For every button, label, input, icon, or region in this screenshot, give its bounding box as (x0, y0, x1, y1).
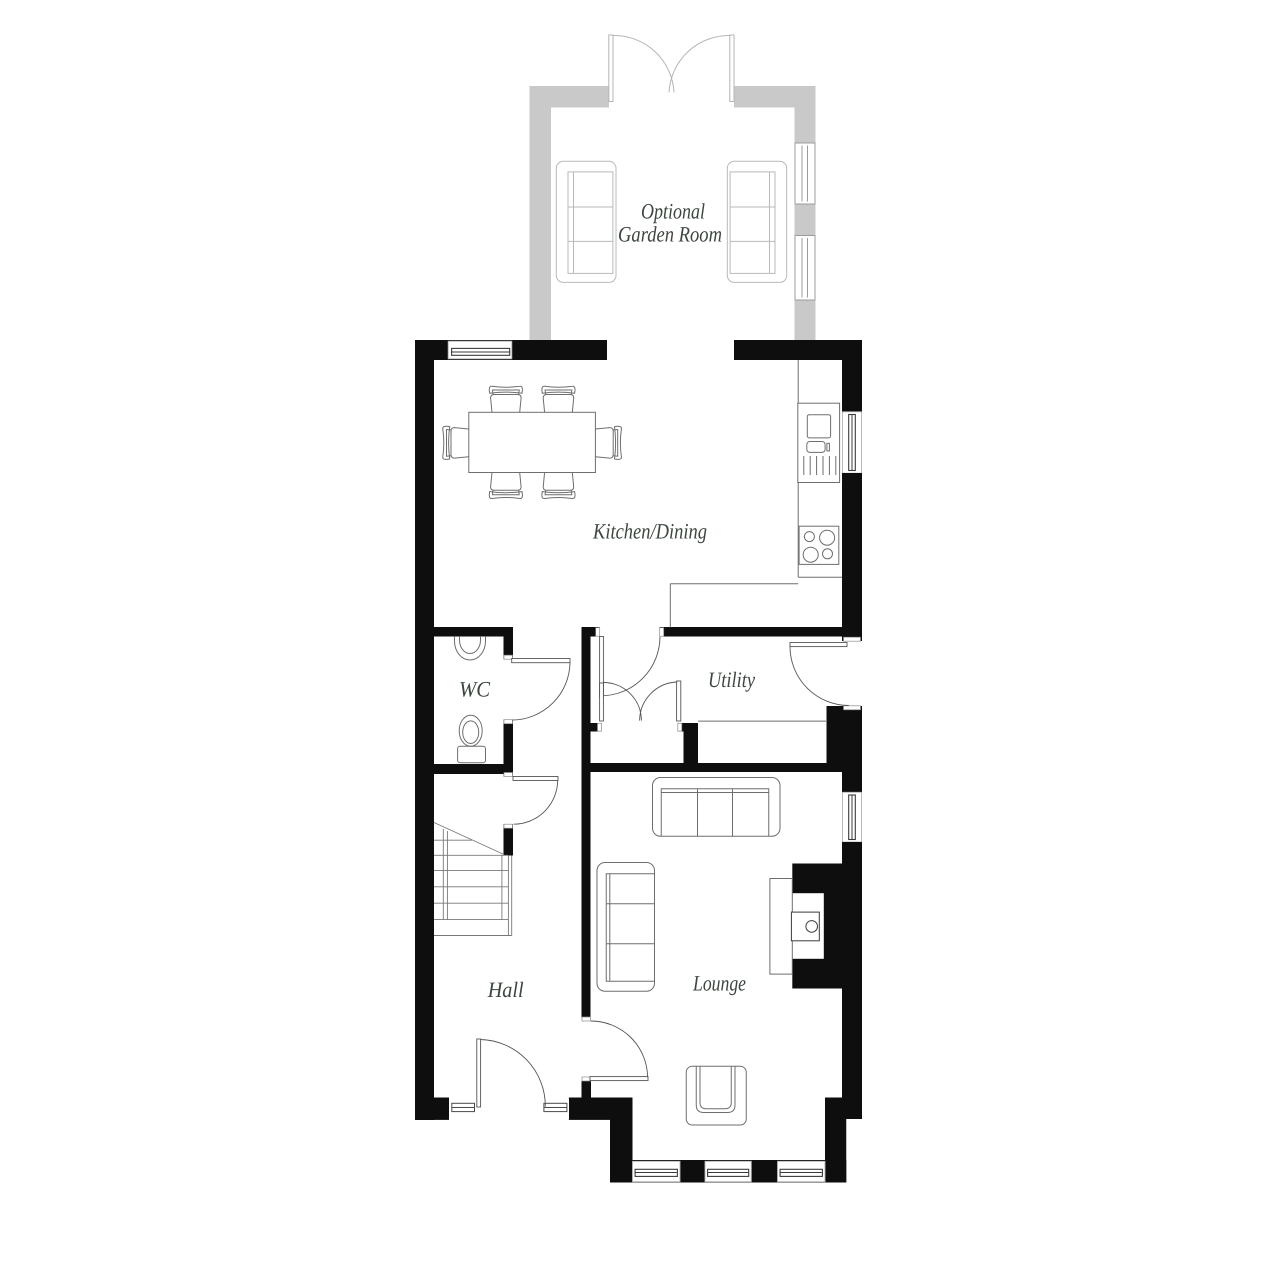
svg-text:WC: WC (459, 676, 490, 701)
svg-text:Kitchen/Dining: Kitchen/Dining (592, 519, 707, 544)
svg-text:Lounge: Lounge (692, 970, 746, 995)
svg-text:Garden Room: Garden Room (618, 222, 722, 247)
svg-text:Optional: Optional (641, 199, 705, 224)
svg-text:Utility: Utility (708, 667, 755, 692)
svg-text:Hall: Hall (487, 977, 524, 1002)
